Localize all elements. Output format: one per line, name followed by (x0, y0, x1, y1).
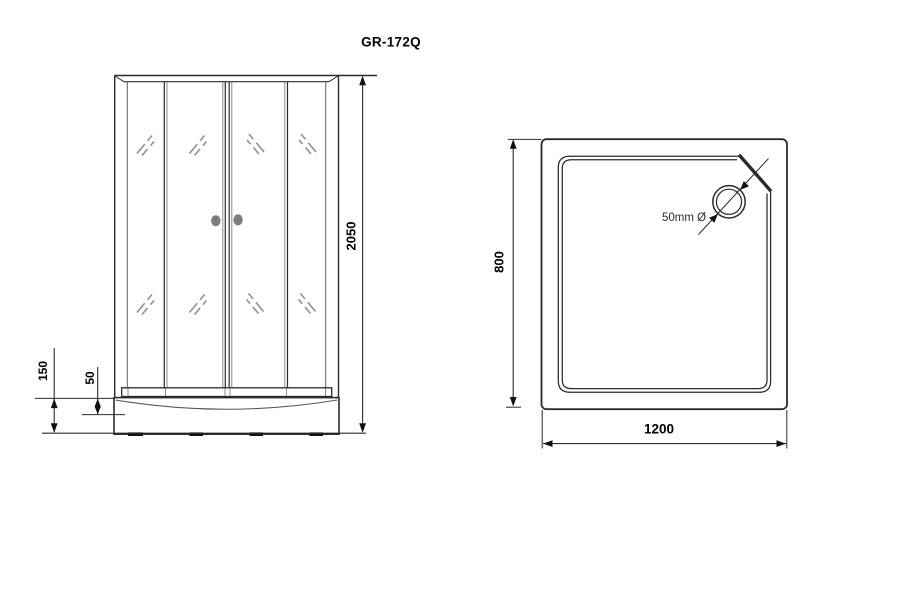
drain-leader-line (699, 159, 769, 235)
dim-label-50: 50 (84, 371, 96, 384)
dim-label-150: 150 (37, 361, 49, 381)
drawing-linework (0, 0, 907, 596)
door-knob-left (211, 215, 220, 226)
top-frame-bar (115, 76, 378, 82)
drawing-canvas: GR-172Q 2050 150 50 800 1200 50mm Ø (0, 0, 907, 596)
drawing-title: GR-172Q (361, 35, 421, 49)
tray-outer-outline (542, 139, 788, 409)
drain-diameter-label: 50mm Ø (662, 213, 706, 225)
top-view (506, 139, 787, 448)
dim-label-1200: 1200 (644, 422, 674, 436)
side-walls (115, 76, 339, 398)
tray-inner-rim (558, 156, 770, 392)
door-knob-right (233, 214, 242, 225)
dim-line-800 (506, 139, 542, 407)
bottom-rail (122, 388, 332, 397)
door-edges (223, 82, 232, 388)
dim-label-2050: 2050 (345, 222, 358, 251)
dim-label-800: 800 (492, 251, 505, 273)
shower-tray (114, 398, 339, 435)
